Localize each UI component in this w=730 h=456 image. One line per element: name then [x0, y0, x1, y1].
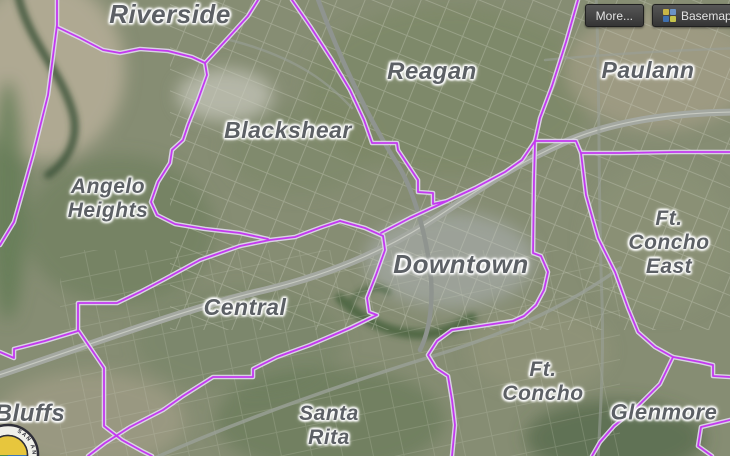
- more-button[interactable]: More...: [585, 4, 644, 27]
- city-seal-logo: SAN ANGELO: [0, 420, 43, 456]
- map-toolbar: More... Basemap: [585, 4, 730, 27]
- map-viewport[interactable]: Riverside Reagan Paulann Blackshear Ange…: [0, 0, 730, 456]
- neighborhood-boundaries-layer: [0, 0, 730, 456]
- basemap-grid-icon: [663, 9, 676, 22]
- basemap-button[interactable]: Basemap: [652, 4, 730, 27]
- more-button-label: More...: [596, 9, 633, 23]
- basemap-button-label: Basemap: [681, 9, 730, 23]
